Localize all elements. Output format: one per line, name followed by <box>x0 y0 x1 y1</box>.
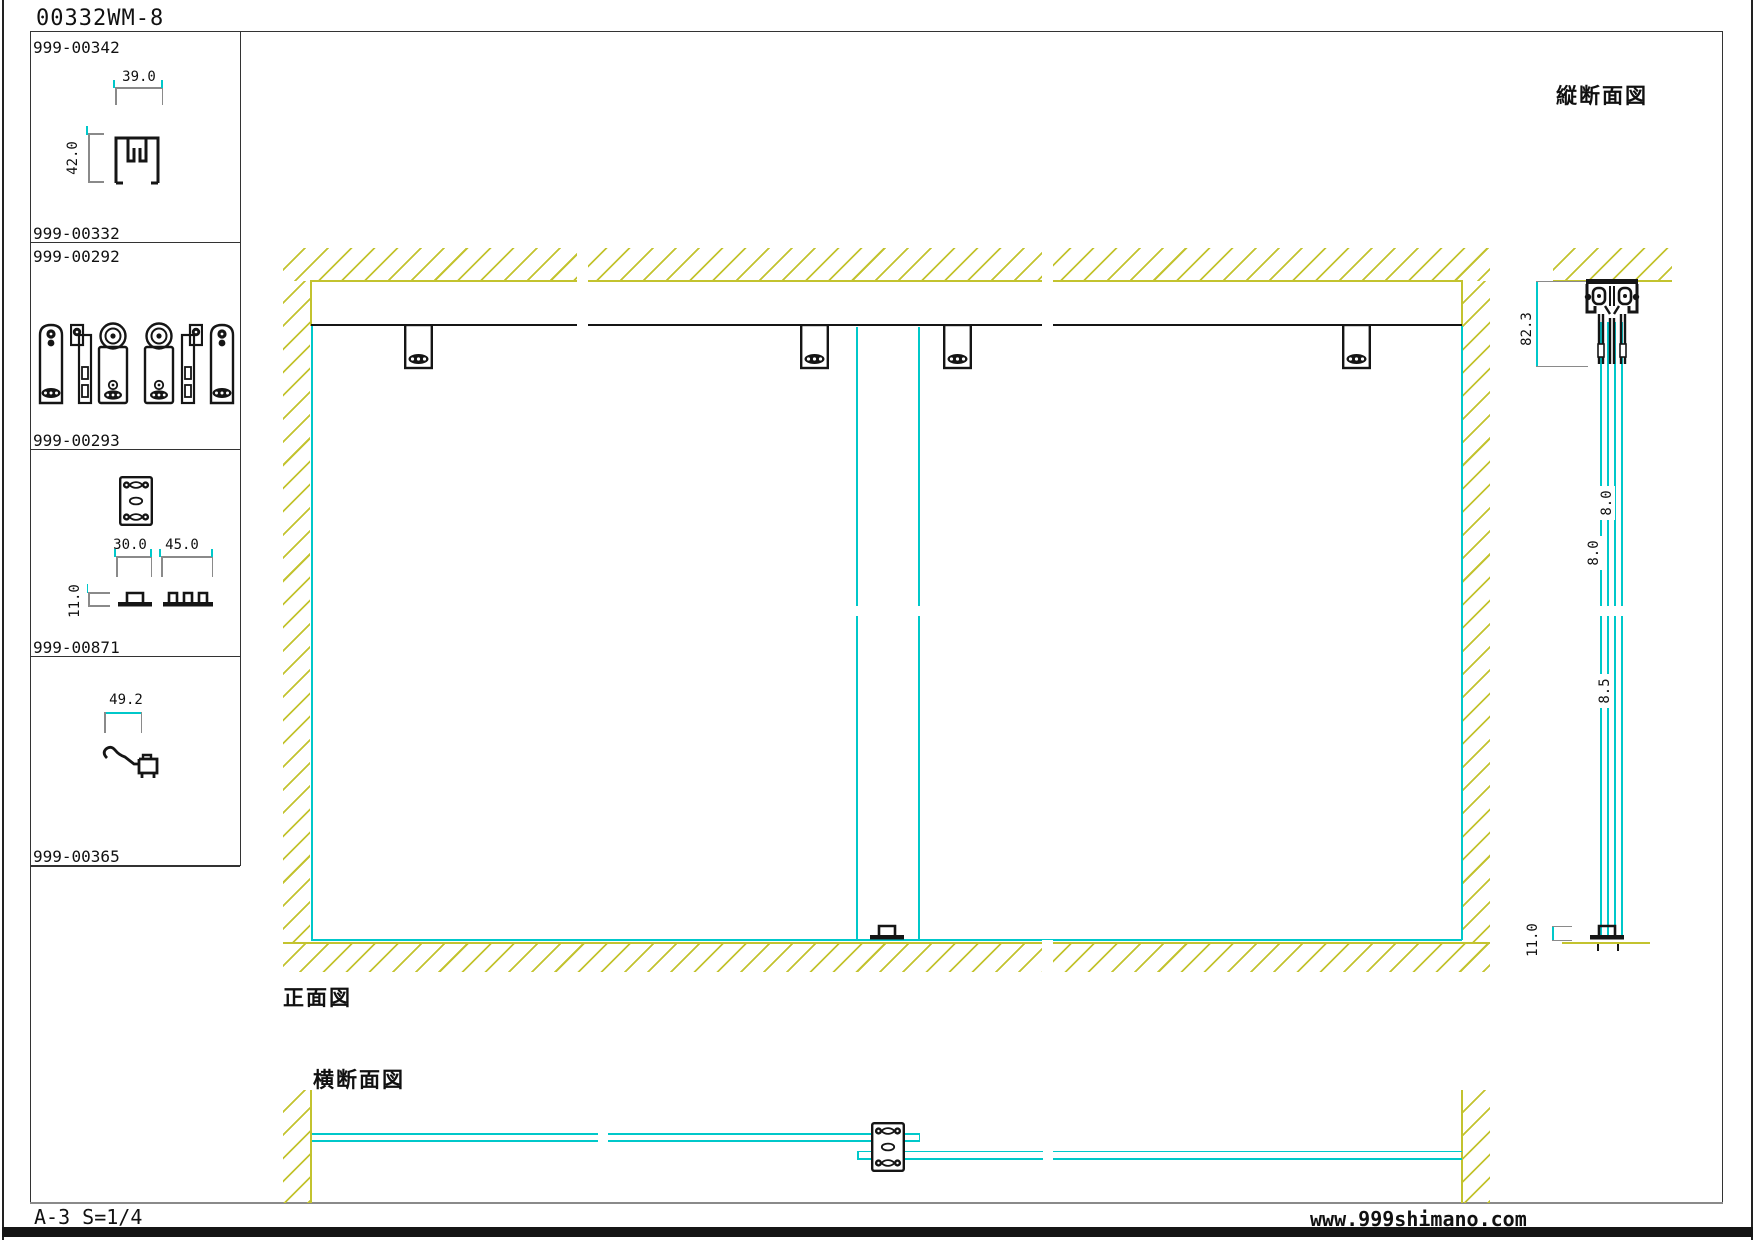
roller-bracket-view-mirror <box>207 321 237 405</box>
floor-hatch <box>283 944 1490 972</box>
floor-anchor-tick <box>1617 944 1619 951</box>
part-id-999-00332: 999-00332 <box>33 224 120 243</box>
roller-wheel-view <box>96 321 130 405</box>
dim-line <box>104 712 106 733</box>
cad-drawing-canvas: 00332WM-8 999-00342 999-00332 999-00292 … <box>0 0 1755 1240</box>
dim-glass-a: 8.0 <box>1599 486 1615 520</box>
website-url: www.999shimano.com <box>1310 1207 1527 1231</box>
dim-line <box>115 87 117 105</box>
part-id-999-00292: 999-00292 <box>33 247 120 266</box>
plan-glass-a-top <box>312 1133 598 1135</box>
roller-wheel-view-mirror <box>142 321 176 405</box>
dim-82-3: 82.3 <box>1519 312 1535 346</box>
floor-line <box>283 942 1490 944</box>
glass-edge-right <box>1461 326 1463 940</box>
part-id-999-00365: 999-00365 <box>33 847 120 866</box>
paper-edge-right <box>1751 0 1753 1240</box>
dim-11: 11.0 <box>67 584 83 618</box>
part-id-999-00293: 999-00293 <box>33 431 120 450</box>
dim-line <box>1536 282 1538 367</box>
dim-line <box>162 87 164 105</box>
section-glass-line <box>1600 616 1602 937</box>
wall-hatch-right <box>1463 281 1490 943</box>
frame-top <box>30 31 1723 32</box>
break-gap <box>1042 940 1053 973</box>
paper-edge-left <box>2 0 4 1240</box>
roller-side-view-mirror <box>179 323 203 405</box>
dim-tick <box>1536 281 1588 282</box>
wall-line-left-upper <box>310 280 312 326</box>
dim-49: 49.2 <box>106 692 146 708</box>
floor-guide <box>869 923 905 941</box>
front-view-label: 正面図 <box>283 982 352 1012</box>
plan-wall-line-right <box>1461 1090 1463 1203</box>
dim-glass-b: 8.0 <box>1586 536 1602 570</box>
dim-line <box>88 592 110 594</box>
track-hanger-bracket <box>800 326 829 370</box>
roller-side-view <box>70 323 94 405</box>
wall-hatch-left <box>283 281 310 943</box>
sheet-scale: A-3 S=1/4 <box>34 1205 142 1229</box>
dim-line <box>161 556 163 577</box>
guide-plate-drawing <box>119 476 153 526</box>
dim-line <box>151 556 153 577</box>
dim-line <box>115 87 163 89</box>
dim-tick <box>87 584 89 593</box>
plan-glass-b-end <box>857 1151 859 1160</box>
dim-39: 39.0 <box>119 69 159 85</box>
break-gap <box>577 246 588 284</box>
dim-floor-11: 11.0 <box>1525 923 1541 957</box>
ceiling-hatch <box>283 248 1490 281</box>
section-floor-guide <box>1589 923 1625 941</box>
break-gap <box>577 322 588 329</box>
dim-30: 30.0 <box>110 537 150 553</box>
dim-tick <box>159 549 161 557</box>
dim-tick <box>113 80 115 88</box>
vertical-section-label: 縦断面図 <box>1556 80 1648 110</box>
plan-glass-a-end <box>919 1133 921 1142</box>
panel-meeting-edge <box>856 327 858 606</box>
dim-line <box>116 556 152 558</box>
section-glass-line <box>1607 616 1609 937</box>
dim-tick <box>1536 366 1588 367</box>
dim-line <box>88 605 110 607</box>
dim-gap-8-5: 8.5 <box>1597 674 1613 708</box>
track-hanger-bracket <box>404 326 433 370</box>
dim-tick <box>86 126 88 135</box>
dim-line <box>88 181 104 183</box>
dim-line <box>104 712 142 714</box>
dim-line <box>88 133 104 135</box>
panel-meeting-edge <box>856 616 858 940</box>
track-line <box>311 324 1462 326</box>
rail-profile-drawing <box>108 130 166 186</box>
dim-line <box>1552 926 1554 941</box>
wall-line-right-upper <box>1461 280 1463 326</box>
dim-line <box>161 556 213 558</box>
section-track-assembly <box>1583 276 1641 368</box>
hook-profile-drawing <box>101 744 163 780</box>
dim-tick <box>150 549 152 557</box>
plan-glass-b-top <box>1053 1151 1462 1153</box>
dim-line <box>212 556 214 577</box>
dim-line <box>88 592 90 607</box>
section-glass-line <box>1621 616 1623 937</box>
plan-guide-plate <box>871 1122 905 1172</box>
dim-tick <box>1552 926 1572 927</box>
dim-45: 45.0 <box>162 537 202 553</box>
dim-tick <box>161 80 163 88</box>
roller-bracket-view <box>36 321 66 405</box>
section-glass-line <box>1614 616 1616 937</box>
frame-left <box>30 31 31 1203</box>
plan-wall-hatch-right <box>1463 1090 1490 1203</box>
ceiling-line <box>311 280 1462 282</box>
track-hanger-bracket <box>943 326 972 370</box>
frame-right <box>1722 31 1723 1203</box>
part-id-999-00342: 999-00342 <box>33 38 120 57</box>
dim-line <box>88 133 90 182</box>
floor-anchor-tick <box>1597 944 1599 951</box>
sidebar-right-border <box>240 31 241 866</box>
section-floor-line <box>1562 942 1650 944</box>
dim-tick <box>211 549 213 557</box>
plan-glass-a-bottom <box>312 1140 598 1142</box>
plan-wall-hatch-left <box>283 1090 310 1203</box>
part-id-999-00871: 999-00871 <box>33 638 120 657</box>
dim-line <box>116 556 118 577</box>
horizontal-section-label: 横断面図 <box>313 1064 405 1094</box>
panel-meeting-edge <box>918 327 920 606</box>
track-hanger-bracket <box>1342 326 1371 370</box>
glass-edge-left <box>311 326 313 940</box>
plan-glass-b-bottom <box>1053 1158 1462 1160</box>
break-gap <box>1042 246 1053 284</box>
break-gap <box>1042 322 1053 329</box>
panel-meeting-edge <box>918 616 920 940</box>
dim-42: 42.0 <box>65 141 81 175</box>
plan-wall-line-left <box>310 1090 312 1203</box>
dim-line <box>141 712 143 733</box>
floor-guide-profile-45 <box>162 590 214 608</box>
floor-guide-profile-30 <box>117 590 153 608</box>
drawing-title: 00332WM-8 <box>36 6 164 31</box>
